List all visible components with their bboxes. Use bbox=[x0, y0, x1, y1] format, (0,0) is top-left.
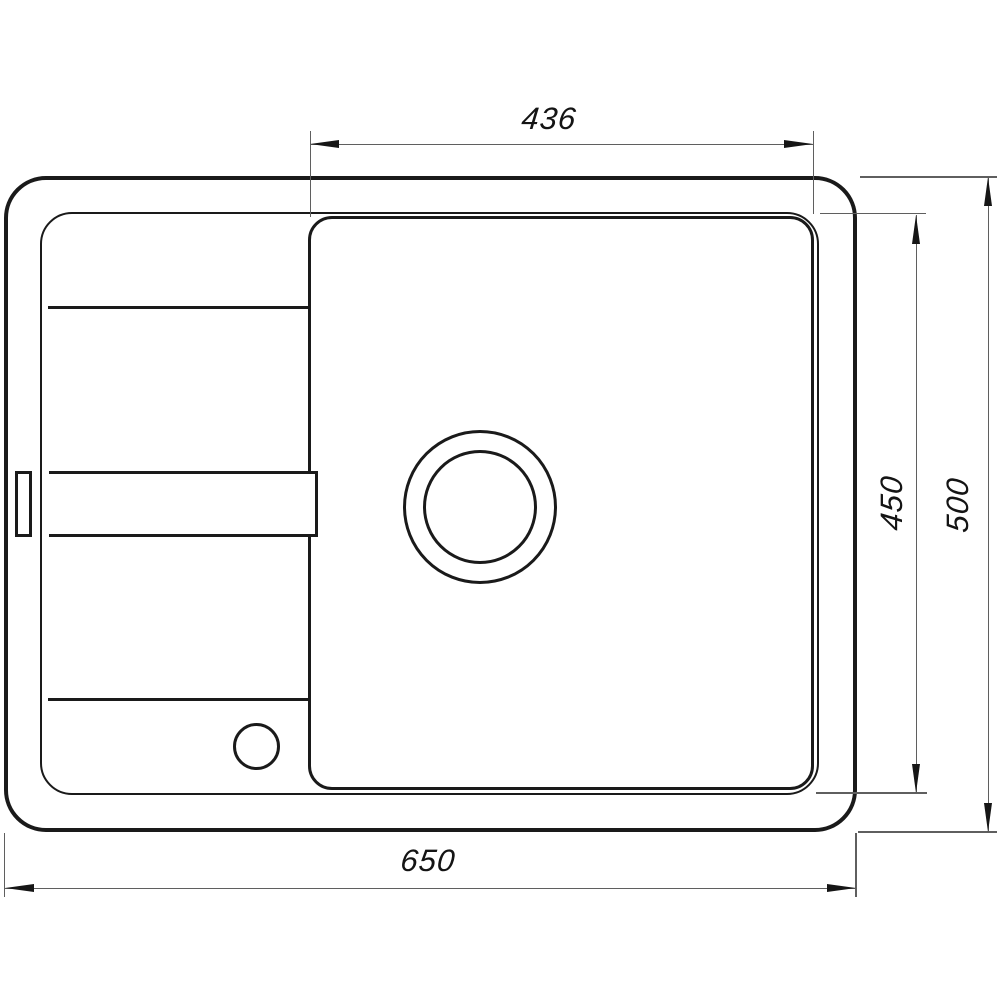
dim-label-basin-depth: 450 bbox=[874, 474, 910, 533]
ext-line-450-top bbox=[820, 213, 926, 215]
ext-line-500-bottom bbox=[858, 831, 997, 833]
dim-line-436 bbox=[310, 144, 813, 146]
drain-inner-circle bbox=[423, 450, 537, 564]
sink-technical-drawing: 436 450 500 650 bbox=[0, 0, 1000, 1000]
drainboard-groove-bottom bbox=[48, 698, 310, 701]
dim-line-450 bbox=[916, 215, 918, 793]
arrowhead-650-right bbox=[827, 884, 856, 892]
basin-outline bbox=[308, 216, 814, 790]
drainboard-groove-top bbox=[48, 306, 310, 309]
arrowhead-500-bottom bbox=[984, 803, 992, 832]
drainboard-channel bbox=[49, 471, 318, 537]
dim-label-basin-width: 436 bbox=[520, 101, 579, 137]
dim-label-overall-depth: 500 bbox=[940, 476, 976, 535]
arrowhead-436-right bbox=[784, 140, 813, 148]
ext-line-500-top bbox=[860, 176, 997, 178]
dim-label-overall-width: 650 bbox=[399, 843, 458, 879]
arrowhead-450-bottom bbox=[912, 764, 920, 793]
dim-line-650 bbox=[5, 888, 856, 890]
arrowhead-450-top bbox=[912, 215, 920, 244]
arrowhead-650-left bbox=[5, 884, 34, 892]
arrowhead-436-left bbox=[310, 140, 339, 148]
ext-line-450-bottom bbox=[816, 792, 927, 794]
arrowhead-500-top bbox=[984, 177, 992, 206]
drainboard-drain-hole bbox=[233, 723, 280, 770]
rim-slot bbox=[15, 471, 32, 537]
dim-line-500 bbox=[988, 177, 990, 832]
